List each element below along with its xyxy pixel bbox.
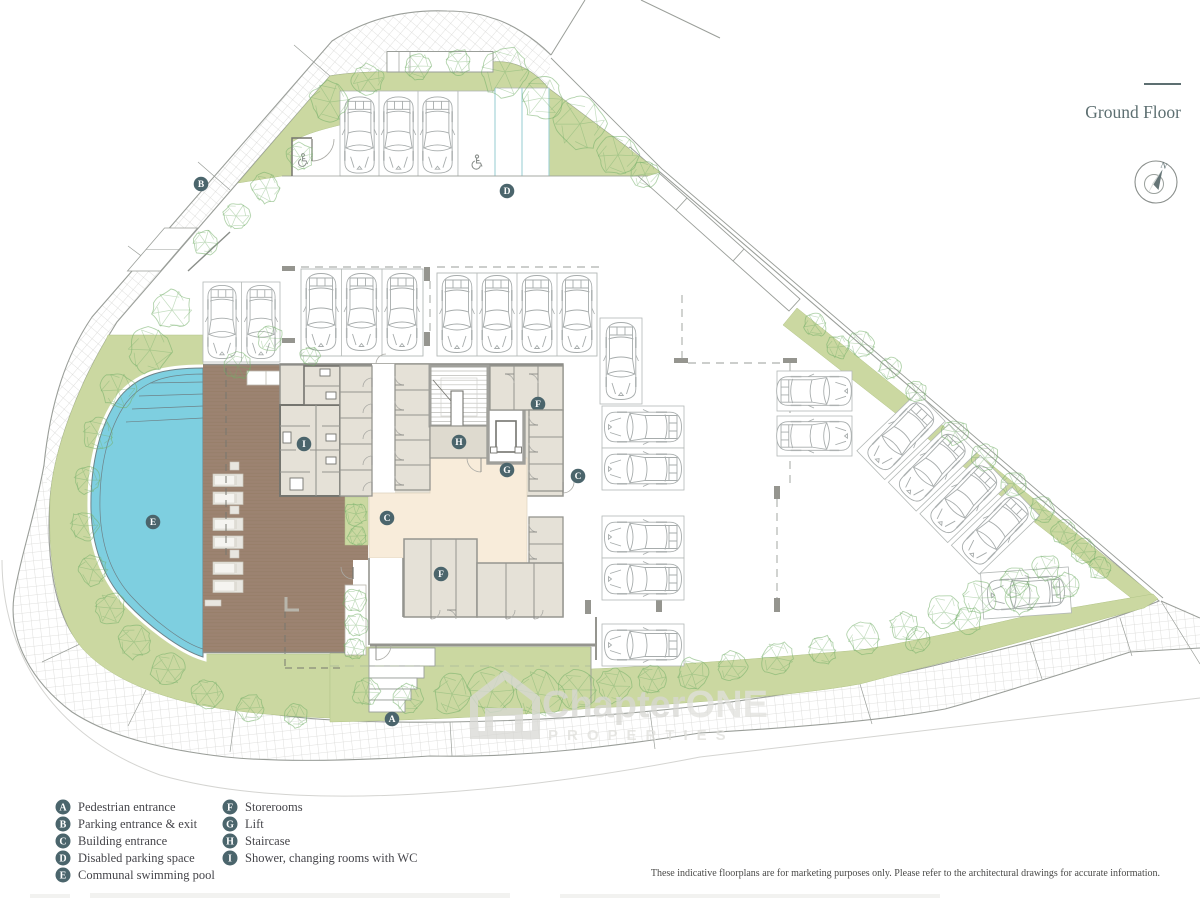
svg-text:D: D	[504, 187, 511, 197]
svg-text:Staircase: Staircase	[245, 834, 291, 848]
svg-text:F: F	[438, 570, 444, 580]
svg-text:G: G	[226, 819, 234, 830]
svg-text:C: C	[384, 514, 391, 524]
svg-text:Lift: Lift	[245, 817, 264, 831]
svg-text:Parking entrance & exit: Parking entrance & exit	[78, 817, 198, 831]
svg-text:Disabled parking space: Disabled parking space	[78, 851, 195, 865]
svg-text:Storerooms: Storerooms	[245, 800, 303, 814]
svg-text:H: H	[455, 438, 463, 448]
svg-text:PROPERTIES: PROPERTIES	[548, 727, 735, 744]
svg-text:E: E	[60, 870, 67, 881]
svg-text:C: C	[575, 472, 582, 482]
svg-text:F: F	[535, 400, 541, 410]
svg-text:A: A	[389, 715, 396, 725]
svg-text:B: B	[198, 180, 205, 190]
svg-text:Shower, changing rooms with WC: Shower, changing rooms with WC	[245, 851, 418, 865]
svg-text:ChapterONE: ChapterONE	[542, 684, 768, 726]
svg-text:I: I	[228, 853, 232, 864]
svg-text:D: D	[59, 853, 66, 864]
svg-text:B: B	[60, 819, 67, 830]
svg-text:C: C	[59, 836, 66, 847]
svg-text:I: I	[302, 440, 306, 450]
svg-text:Communal swimming pool: Communal swimming pool	[78, 868, 215, 882]
svg-text:F: F	[227, 802, 233, 813]
svg-text:Building entrance: Building entrance	[78, 834, 168, 848]
svg-text:Ground Floor: Ground Floor	[1085, 102, 1181, 122]
svg-text:E: E	[150, 518, 156, 528]
svg-text:These indicative floorplans ar: These indicative floorplans are for mark…	[651, 868, 1160, 879]
svg-text:H: H	[226, 836, 234, 847]
svg-text:G: G	[503, 466, 511, 476]
svg-text:Pedestrian entrance: Pedestrian entrance	[78, 800, 176, 814]
svg-text:A: A	[59, 802, 67, 813]
